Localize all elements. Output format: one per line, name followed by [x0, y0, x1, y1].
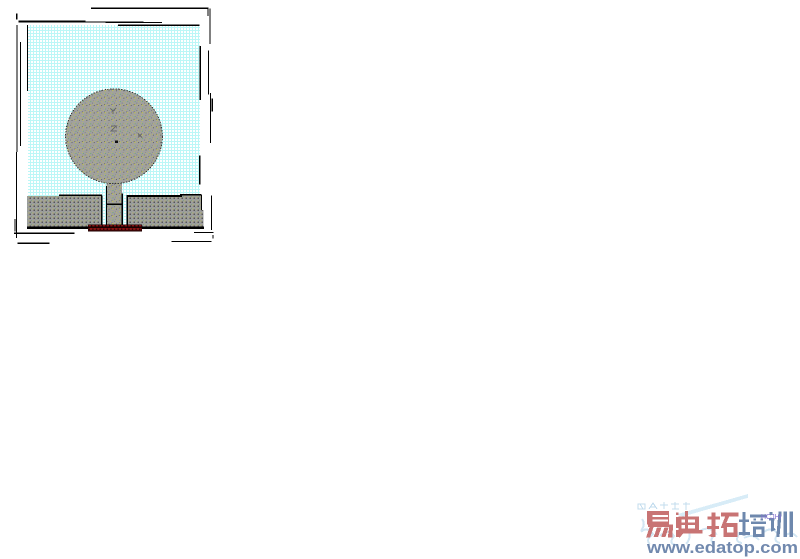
svg-text:www.edatop.com: www.edatop.com — [646, 539, 798, 557]
svg-text:HCJHI: HCJHI — [761, 514, 782, 521]
